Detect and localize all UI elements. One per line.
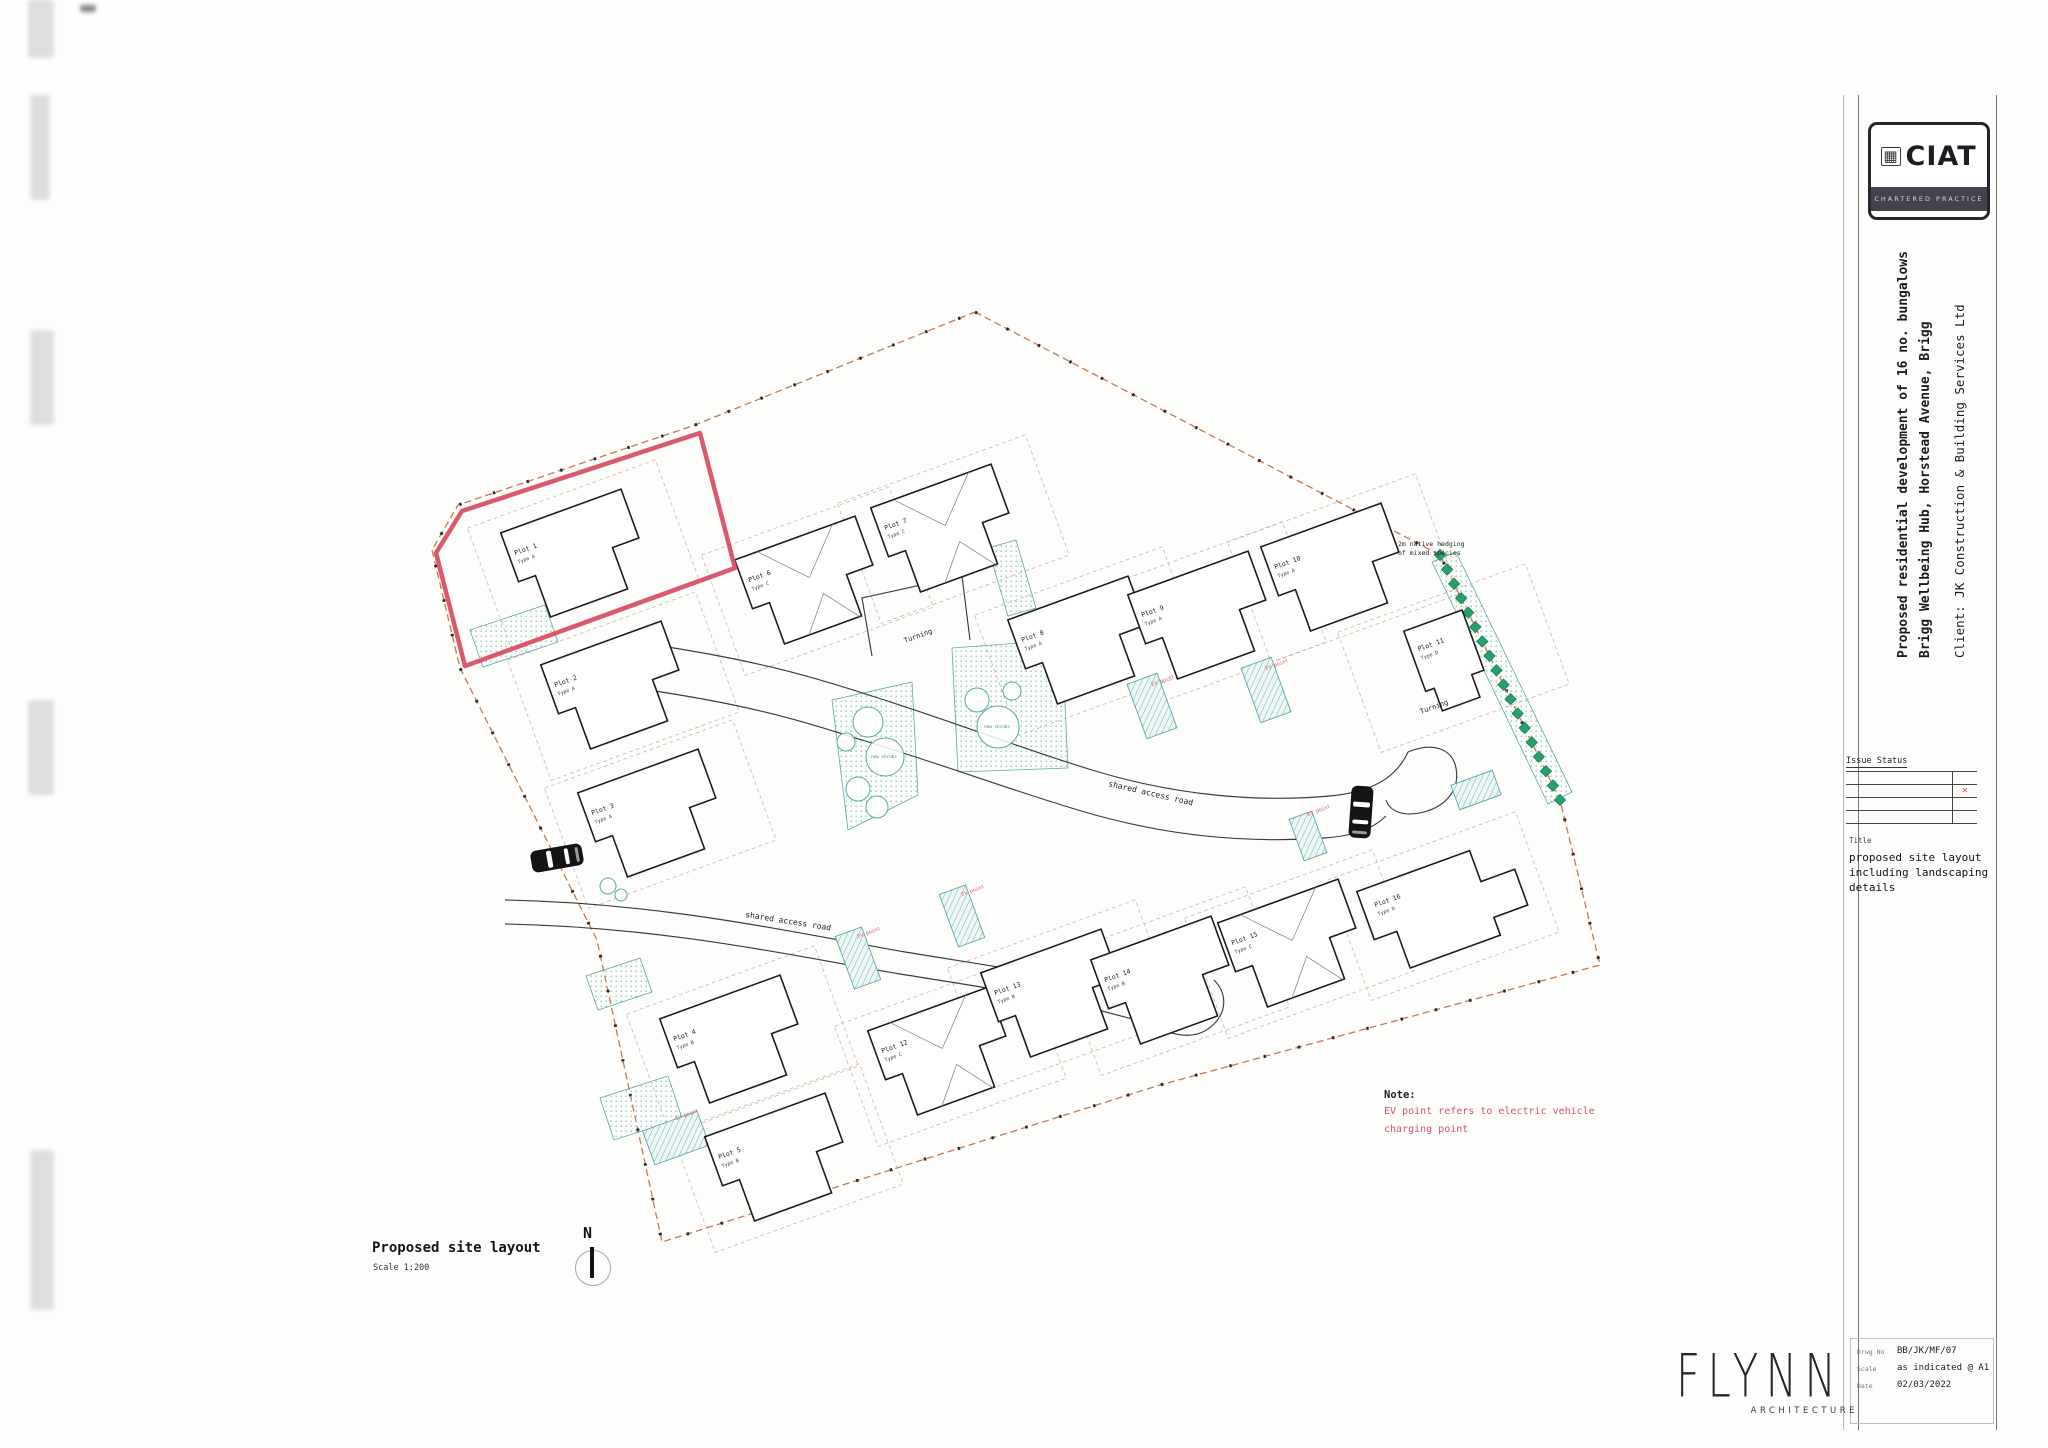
plot-type-label: Type A xyxy=(1024,641,1043,653)
hedge-plant xyxy=(1434,549,1445,560)
plan-caption-scale: Scale 1:200 xyxy=(373,1263,429,1273)
building-plot-7: Plot 7Type C xyxy=(871,464,1024,598)
tree-circle xyxy=(965,688,989,712)
building-plot-11: Plot 11Type D xyxy=(1404,610,1492,714)
road-edge xyxy=(505,900,1168,1002)
road-label: shared access road xyxy=(745,910,832,932)
tree-circle xyxy=(977,706,1019,748)
plot-type-label: Type B xyxy=(997,994,1016,1006)
plot-parcel-line xyxy=(1227,474,1459,663)
plot-label: Plot 16 xyxy=(1373,892,1402,909)
plot-parcel-line xyxy=(671,1064,903,1253)
plot-type-label: Type A xyxy=(517,554,536,566)
drawing-title: details xyxy=(1849,880,1988,895)
plot-parcel-line xyxy=(507,592,739,781)
plot-label: Plot 11 xyxy=(1417,636,1446,653)
issue-status-mark: ✕ xyxy=(1953,785,1978,798)
hedge-plant xyxy=(1477,636,1488,647)
scan-smudge xyxy=(28,0,54,58)
issue-status-table: Issue Status ✕ xyxy=(1846,756,1977,824)
ev-point-label: EV point xyxy=(1151,674,1176,688)
plot-type-label: Type C xyxy=(884,1052,903,1064)
hedge-plant xyxy=(1547,780,1558,791)
title-block-border xyxy=(1843,95,1844,1430)
building-plot-16: Plot 16Type D xyxy=(1357,838,1534,976)
plot-label: Plot 4 xyxy=(672,1028,697,1044)
building-plot-14: Plot 14Type B xyxy=(1091,916,1244,1050)
hatched-bay xyxy=(1241,657,1291,722)
ev-point-label: EV point xyxy=(1307,804,1332,818)
hatched-bay xyxy=(1451,770,1501,809)
plot-label: Plot 14 xyxy=(1103,967,1132,984)
site-boundary xyxy=(432,312,1600,1242)
road-label: shared access road xyxy=(1108,779,1195,807)
hedge-plant xyxy=(1519,722,1530,733)
plot-type-label: Type C xyxy=(1234,944,1253,956)
north-arrow-label: N xyxy=(583,1224,592,1242)
road-edge xyxy=(1150,980,1224,1035)
plot-type-label: Type B xyxy=(721,1158,740,1170)
title-block-border xyxy=(1996,95,1997,1430)
hedge-plant xyxy=(1505,693,1516,704)
ciat-logo-text: CIAT xyxy=(1906,141,1977,172)
plot-type-label: Type A xyxy=(1144,616,1163,628)
hedge-plant xyxy=(1533,751,1544,762)
landscape-area xyxy=(586,958,652,1010)
building-plot-2: Plot 2Type A xyxy=(541,621,694,755)
plot-label: Plot 3 xyxy=(590,802,615,818)
scan-smudge xyxy=(80,5,96,12)
tree-circle xyxy=(600,878,616,894)
project-title-line2: Brigg Wellbeing Hub, Horstead Avenue, Br… xyxy=(1918,358,1933,658)
plot-label: Plot 8 xyxy=(1020,629,1045,645)
plot-type-label: Type A xyxy=(594,814,613,826)
plot-label: Plot 12 xyxy=(880,1038,909,1055)
building-plot-5: Plot 5Type B xyxy=(705,1093,858,1227)
building-plot-10: Plot 10Type A xyxy=(1261,503,1414,637)
drawing-date: 02/03/2022 xyxy=(1897,1380,1951,1390)
hatched-bay xyxy=(1127,673,1177,738)
building-plot-15: Plot 15Type C xyxy=(1218,879,1371,1013)
note-text: EV point refers to electric vehicle xyxy=(1384,1106,1595,1117)
scan-smudge xyxy=(30,1150,54,1310)
tree-circle xyxy=(615,889,627,901)
ev-point-label: EV point xyxy=(857,926,882,940)
hedge-plant xyxy=(1498,679,1509,690)
plot-type-label: Type D xyxy=(1420,650,1439,662)
road-edge xyxy=(648,644,1408,798)
building-plot-4: Plot 4Type B xyxy=(660,975,813,1109)
landscape-area xyxy=(470,605,558,667)
plot-type-label: Type C xyxy=(751,581,770,593)
landscape-area xyxy=(988,540,1036,616)
car-icon xyxy=(1348,785,1374,838)
road-edge xyxy=(648,690,1386,840)
building-plot-3: Plot 3Type A xyxy=(578,749,731,883)
plot-parcel-line xyxy=(837,435,1069,624)
ev-point-label: EV point xyxy=(675,1108,700,1122)
hedge-plant xyxy=(1554,794,1565,805)
plot-parcel-line xyxy=(947,900,1179,1089)
shrub-label: new shrubs xyxy=(984,724,1010,730)
site-plan-svg: 2m native hedgingof mixed speciesnew shr… xyxy=(0,0,2048,1448)
hedge-plant xyxy=(1526,737,1537,748)
plot-label: Plot 7 xyxy=(883,517,908,533)
building-plot-1: Plot 1Type A xyxy=(501,489,654,623)
plot-label: Plot 10 xyxy=(1273,554,1302,571)
turning-label: Turning xyxy=(903,627,933,645)
hatched-bay xyxy=(643,1111,710,1165)
hedge-note: 2m native hedging xyxy=(1398,540,1465,548)
architect-logo: FLYNN ARCHITECTURE xyxy=(1676,1344,1858,1416)
drawing-info-box: Drwg No BB/JK/MF/07 Scale as indicated @… xyxy=(1850,1338,1994,1424)
hedge-plant xyxy=(1484,650,1495,661)
hedge-plant xyxy=(1491,665,1502,676)
title-section: Title proposed site layout including lan… xyxy=(1849,833,1988,895)
plot-parcel-line xyxy=(834,958,1066,1147)
building-plot-13: Plot 13Type B xyxy=(981,929,1134,1063)
plot-parcel-line xyxy=(701,487,933,676)
hatched-bay xyxy=(939,885,984,947)
road-edge xyxy=(505,924,1150,1024)
plot-parcel-line xyxy=(467,460,699,649)
plot-type-label: Type A xyxy=(557,686,576,698)
plot-parcel-line xyxy=(626,946,858,1135)
note-text: charging point xyxy=(1384,1124,1468,1135)
turning-label: Turning xyxy=(1419,698,1449,716)
hedge-plant xyxy=(1456,593,1467,604)
drawing-title: including landscaping xyxy=(1849,865,1988,880)
drawing-sheet: 2m native hedgingof mixed speciesnew shr… xyxy=(0,0,2048,1448)
building-plot-12: Plot 12Type C xyxy=(868,987,1021,1121)
landscape-area xyxy=(952,640,1068,772)
plot-label: Plot 13 xyxy=(993,980,1022,997)
tree-circle xyxy=(853,707,883,737)
tree-circle xyxy=(837,733,855,751)
hedge-plant xyxy=(1463,607,1474,618)
plot-parcel-line xyxy=(1057,887,1289,1076)
project-title-line1: Proposed residential development of 16 n… xyxy=(1896,328,1911,658)
tree-circle xyxy=(866,796,888,818)
plot-label: Plot 5 xyxy=(717,1146,742,1162)
plot-parcel-line xyxy=(1327,812,1559,1001)
site-boundary-ticks xyxy=(432,312,1600,1242)
hedge-plant xyxy=(1441,564,1452,575)
plot-parcel-line xyxy=(1094,522,1326,711)
car-icon xyxy=(529,843,584,874)
drawing-scale: as indicated @ A1 xyxy=(1897,1363,1989,1373)
ciat-emblem-icon: ▦ xyxy=(1881,147,1900,166)
architect-name: FLYNN xyxy=(1676,1344,1867,1410)
landscape-area xyxy=(832,682,918,830)
hedge-plant xyxy=(1448,578,1459,589)
issue-status-label: Issue Status xyxy=(1846,756,1907,768)
road-edge xyxy=(1386,747,1457,814)
ev-point-label: EV point xyxy=(961,884,986,898)
drawing-number: BB/JK/MF/07 xyxy=(1897,1346,1957,1356)
plot-parcel-line xyxy=(1184,850,1416,1039)
hedge-plant xyxy=(1540,766,1551,777)
plot-type-label: Type C xyxy=(887,529,906,541)
hatched-bay xyxy=(1289,811,1327,861)
hatched-bay xyxy=(835,927,880,989)
landscape-area xyxy=(1432,552,1572,804)
hedge-plant xyxy=(1470,621,1481,632)
scan-smudge xyxy=(28,700,54,795)
building-plot-6: Plot 6Type C xyxy=(735,516,888,650)
plot-parcel-line xyxy=(974,547,1206,736)
plot-parcel-line xyxy=(1337,564,1569,753)
highlighted-plot-boundary xyxy=(436,433,735,666)
plot-label: Plot 1 xyxy=(513,542,538,558)
tree-circle xyxy=(846,777,870,801)
plot-label: Plot 6 xyxy=(747,569,772,585)
hedge-note: of mixed species xyxy=(1398,549,1461,557)
plot-label: Plot 15 xyxy=(1230,930,1259,947)
landscape-area xyxy=(600,1076,682,1140)
shrub-label: new shrubs xyxy=(871,754,897,760)
ciat-logo-subtext: CHARTERED PRACTICE xyxy=(1871,187,1987,211)
project-client: Client: JK Construction & Building Servi… xyxy=(1952,348,1967,658)
plot-type-label: Type B xyxy=(676,1040,695,1052)
tree-circle xyxy=(866,738,904,776)
plot-type-label: Type D xyxy=(1377,906,1396,918)
scan-smudge xyxy=(30,330,54,425)
plot-label: Plot 2 xyxy=(553,674,578,690)
tree-circle xyxy=(1003,682,1021,700)
hedge-plant xyxy=(1512,708,1523,719)
scan-smudge xyxy=(30,95,50,200)
ev-point-label: EV point xyxy=(1265,658,1290,672)
drawing-title: proposed site layout xyxy=(1849,850,1988,865)
road-edge xyxy=(862,576,970,656)
building-plot-9: Plot 9Type A xyxy=(1128,551,1281,685)
plot-parcel-line xyxy=(544,720,776,909)
title-label: Title xyxy=(1849,833,1988,848)
plot-label: Plot 9 xyxy=(1140,604,1165,620)
north-arrow-icon xyxy=(590,1247,594,1278)
plot-type-label: Type B xyxy=(1107,981,1126,993)
plan-caption-title: Proposed site layout xyxy=(372,1240,541,1256)
plot-type-label: Type A xyxy=(1277,568,1296,580)
note-label: Note: xyxy=(1384,1089,1416,1101)
building-plot-8: Plot 8Type A xyxy=(1008,576,1161,710)
ciat-logo: ▦ CIAT CHARTERED PRACTICE xyxy=(1868,122,1990,220)
